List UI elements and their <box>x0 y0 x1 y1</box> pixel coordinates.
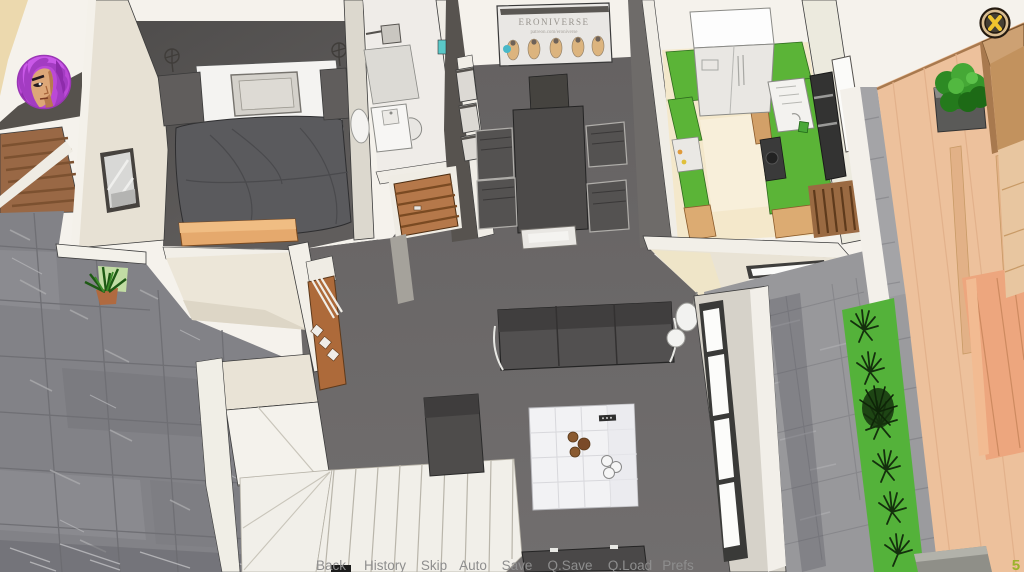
svg-text:Q.Load: Q.Load <box>608 558 652 572</box>
svg-text:History: History <box>364 558 406 572</box>
svg-text:patreon.com/eroniverse: patreon.com/eroniverse <box>530 30 578 35</box>
svg-text:ERONIVERSE: ERONIVERSE <box>519 17 590 27</box>
svg-text:Save: Save <box>502 558 533 572</box>
svg-text:Q.Save: Q.Save <box>547 558 592 572</box>
svg-text:Back: Back <box>316 558 346 572</box>
svg-text:Auto: Auto <box>459 558 487 572</box>
svg-text:Skip: Skip <box>421 558 447 572</box>
svg-text:Prefs: Prefs <box>662 558 694 572</box>
svg-text:5: 5 <box>1011 558 1020 572</box>
